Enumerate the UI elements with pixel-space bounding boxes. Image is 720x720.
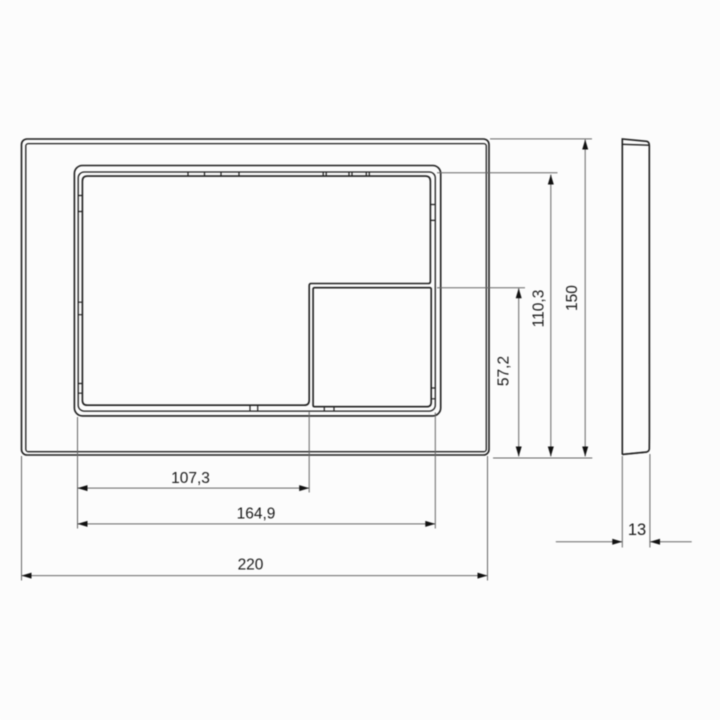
svg-text:107,3: 107,3: [171, 470, 210, 487]
svg-text:13: 13: [628, 521, 646, 539]
svg-text:110,3: 110,3: [531, 290, 548, 328]
svg-text:164,9: 164,9: [237, 506, 276, 523]
svg-text:150: 150: [564, 285, 581, 311]
svg-text:220: 220: [238, 557, 264, 574]
svg-text:57,2: 57,2: [496, 356, 513, 386]
